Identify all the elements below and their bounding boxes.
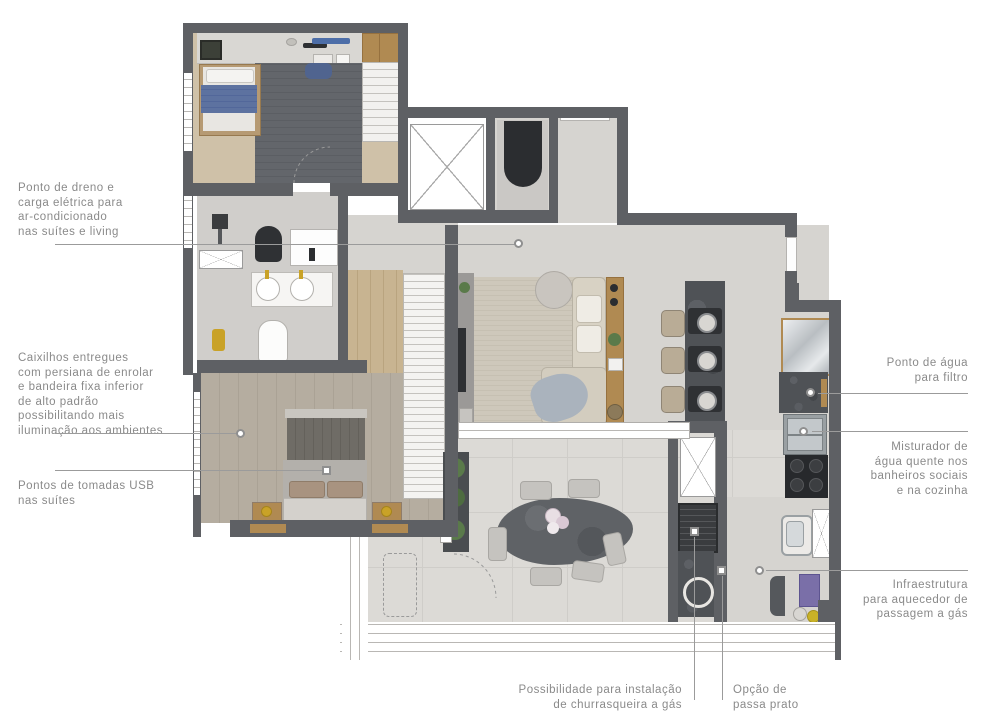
marker-ac-drain bbox=[514, 239, 523, 248]
terrace-glazing-bottom bbox=[340, 622, 835, 660]
wall-bedroom1-bottom-left bbox=[183, 183, 293, 196]
leader-pass-through bbox=[722, 576, 723, 700]
console-lamp-1 bbox=[610, 284, 618, 292]
master-headboard bbox=[287, 418, 365, 460]
annotation-pass-through: Opção de passa prato bbox=[733, 683, 853, 712]
wc-dark-basin bbox=[504, 121, 542, 187]
wall-living-top bbox=[617, 213, 797, 225]
closet-top-divider bbox=[379, 33, 380, 62]
leader-gas-heater bbox=[766, 570, 968, 571]
plate-3 bbox=[697, 391, 717, 411]
future-bench-outline bbox=[383, 553, 417, 617]
wall-under-shaft bbox=[398, 210, 558, 223]
wall-hall-right bbox=[617, 107, 628, 224]
toilet-suite bbox=[258, 320, 288, 362]
leader-hot-water-mixer bbox=[812, 431, 968, 432]
vanity-tap-right bbox=[299, 270, 303, 279]
washer bbox=[770, 576, 785, 616]
marker-window-frames bbox=[236, 429, 245, 438]
marker-gas-heater bbox=[755, 566, 764, 575]
bedroom1-door-swing bbox=[293, 146, 333, 184]
wall-bedroom1-top bbox=[183, 23, 408, 33]
master-pillow-left bbox=[289, 481, 325, 498]
bbq-column-left-wall bbox=[668, 421, 678, 622]
wall-shaft-left bbox=[398, 115, 408, 223]
master-pillow-right bbox=[327, 481, 363, 498]
burner-4 bbox=[809, 478, 823, 492]
bedroom1-window bbox=[184, 73, 192, 151]
master-bottom-wood-inset-1 bbox=[250, 524, 286, 533]
marker-hot-water-mixer bbox=[799, 427, 808, 436]
master-duvet bbox=[284, 498, 366, 521]
sliding-door-living bbox=[458, 422, 690, 439]
plate-1 bbox=[697, 313, 717, 333]
floorplan-canvas: Ponto de dreno e carga elétrica para ar-… bbox=[0, 0, 1000, 722]
annotation-hot-water-mixer: Misturador de água quente nos banheiros … bbox=[838, 440, 968, 498]
terrace-door-swing bbox=[453, 553, 497, 599]
laundry-tank-basin bbox=[786, 521, 804, 547]
kitchen-sink-basin-b bbox=[787, 435, 823, 451]
living-pouf bbox=[535, 271, 573, 309]
bbq-duct bbox=[680, 437, 716, 497]
single-bed-pillow bbox=[206, 69, 254, 83]
dining-chair-2 bbox=[568, 479, 600, 498]
leader-usb-outlets bbox=[55, 470, 323, 471]
desk-bowl bbox=[286, 38, 297, 46]
wall-master-top-stub bbox=[345, 360, 367, 373]
annotation-usb-outlets: Pontos de tomadas USB nas suítes bbox=[18, 479, 218, 508]
annotation-water-filter: Ponto de água para filtro bbox=[838, 356, 968, 385]
console-basket bbox=[607, 404, 623, 420]
wall-shaft-right bbox=[486, 118, 495, 218]
fridge-mirror-cabinet bbox=[781, 318, 831, 376]
master-headboard-shelf bbox=[285, 409, 367, 418]
dining-chair-1 bbox=[520, 481, 552, 500]
wall-bath-b-right bbox=[338, 268, 348, 368]
shower-head-social bbox=[212, 214, 228, 229]
shower-bottle bbox=[309, 248, 315, 261]
bbq-sink bbox=[683, 577, 714, 608]
wall-bath-corridor bbox=[338, 192, 348, 272]
marker-bbq bbox=[690, 527, 699, 536]
sofa-cushion-2 bbox=[576, 325, 602, 353]
plate-2 bbox=[697, 351, 717, 371]
leader-bbq bbox=[694, 537, 695, 700]
annotation-bbq: Possibilidade para instalação de churras… bbox=[430, 683, 682, 712]
marker-usb-outlets bbox=[322, 466, 331, 475]
cleaning-products-box bbox=[799, 574, 820, 607]
wall-right-top bbox=[785, 213, 797, 237]
tv-screen bbox=[458, 328, 466, 392]
console-plant bbox=[608, 333, 621, 346]
stool-2 bbox=[661, 347, 685, 374]
leader-water-filter bbox=[818, 393, 968, 394]
shower-gold-suite bbox=[212, 329, 225, 351]
sofa-cushion-1 bbox=[576, 295, 602, 323]
tv-shelf-plant bbox=[459, 282, 470, 293]
master-bottom-wood-inset-2 bbox=[372, 524, 408, 533]
wall-top-middle bbox=[402, 107, 628, 118]
kitchen-window bbox=[786, 237, 797, 273]
annotation-gas-heater: Infraestrutura para aquecedor de passage… bbox=[838, 578, 968, 622]
annotation-ac-drain: Ponto de dreno e carga elétrica para ar-… bbox=[18, 181, 188, 239]
stool-1 bbox=[661, 310, 685, 337]
burner-3 bbox=[790, 478, 804, 492]
leader-ac-drain bbox=[55, 244, 517, 245]
closet-top-shelf bbox=[362, 33, 400, 64]
burner-2 bbox=[809, 459, 823, 473]
console-lamp-2 bbox=[610, 298, 618, 306]
stool-3 bbox=[661, 386, 685, 413]
lamp-left bbox=[261, 506, 272, 517]
console-box bbox=[608, 358, 623, 371]
lamp-right bbox=[381, 506, 392, 517]
desk-ruler-blue bbox=[312, 38, 350, 44]
wall-master-top bbox=[197, 360, 345, 373]
burner-1 bbox=[790, 459, 804, 473]
bath-duct bbox=[199, 250, 243, 269]
dining-chair-4 bbox=[530, 567, 562, 586]
table-flowers-3 bbox=[547, 522, 559, 534]
wall-corridor-living bbox=[445, 225, 458, 520]
bedroom1-wardrobe bbox=[362, 62, 400, 142]
marker-pass-through bbox=[717, 566, 726, 575]
master-closet bbox=[403, 273, 445, 499]
elevator-shaft bbox=[410, 124, 484, 210]
desk-picture-frame bbox=[200, 40, 222, 60]
wall-wc-right bbox=[549, 115, 558, 218]
leader-window-frames bbox=[55, 433, 237, 434]
single-bed-blanket bbox=[201, 85, 257, 113]
bucket bbox=[793, 607, 807, 621]
vanity-tap-left bbox=[265, 270, 269, 279]
wall-bedroom1-right bbox=[398, 23, 408, 118]
bedroom1-chair bbox=[305, 63, 332, 79]
terrace-glazing-left bbox=[342, 537, 368, 660]
vanity-sink-left bbox=[256, 277, 280, 301]
marker-water-filter bbox=[806, 388, 815, 397]
vanity-sink-right bbox=[290, 277, 314, 301]
annotation-window-frames: Caixilhos entregues com persiana de enro… bbox=[18, 351, 218, 438]
shower-stem bbox=[218, 229, 222, 245]
